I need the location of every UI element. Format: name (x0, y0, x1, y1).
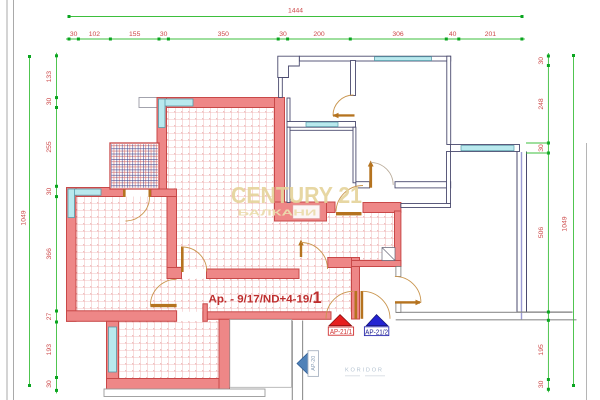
svg-text:27: 27 (46, 313, 53, 321)
svg-text:30: 30 (160, 31, 168, 38)
svg-text:1: 1 (313, 289, 322, 307)
svg-text:350: 350 (218, 31, 230, 38)
svg-text:CENTURY 21: CENTURY 21 (231, 182, 362, 208)
svg-text:195: 195 (538, 344, 545, 356)
svg-text:248: 248 (538, 98, 545, 110)
svg-text:30: 30 (46, 98, 53, 106)
svg-text:Ap. - 9/17/ND+4-19/: Ap. - 9/17/ND+4-19/ (209, 294, 313, 306)
svg-text:366: 366 (46, 248, 53, 260)
svg-text:506: 506 (538, 227, 545, 239)
svg-text:155: 155 (129, 31, 141, 38)
svg-text:30: 30 (538, 380, 545, 388)
svg-text:40: 40 (449, 31, 457, 38)
svg-text:AP-20: AP-20 (311, 356, 317, 371)
svg-text:30: 30 (70, 31, 78, 38)
svg-text:102: 102 (89, 31, 101, 38)
svg-text:201: 201 (485, 31, 497, 38)
svg-text:KORIDOR: KORIDOR (345, 368, 384, 374)
svg-text:1049: 1049 (562, 216, 569, 231)
svg-text:200: 200 (313, 31, 325, 38)
svg-text:255: 255 (46, 141, 53, 153)
svg-text:30: 30 (538, 57, 545, 65)
svg-text:1444: 1444 (288, 8, 303, 15)
svg-text:306: 306 (392, 31, 404, 38)
svg-text:30: 30 (538, 144, 545, 152)
svg-text:30: 30 (46, 188, 53, 196)
svg-text:193: 193 (46, 344, 53, 356)
svg-text:30: 30 (279, 31, 287, 38)
svg-text:133: 133 (46, 71, 53, 83)
svg-text:БАЛКАНИ: БАЛКАНИ (238, 208, 317, 218)
svg-text:AP-21/2: AP-21/2 (365, 327, 388, 336)
svg-text:1049: 1049 (21, 210, 28, 225)
svg-text:30: 30 (46, 380, 53, 388)
svg-text:AP-21/1: AP-21/1 (330, 327, 352, 336)
